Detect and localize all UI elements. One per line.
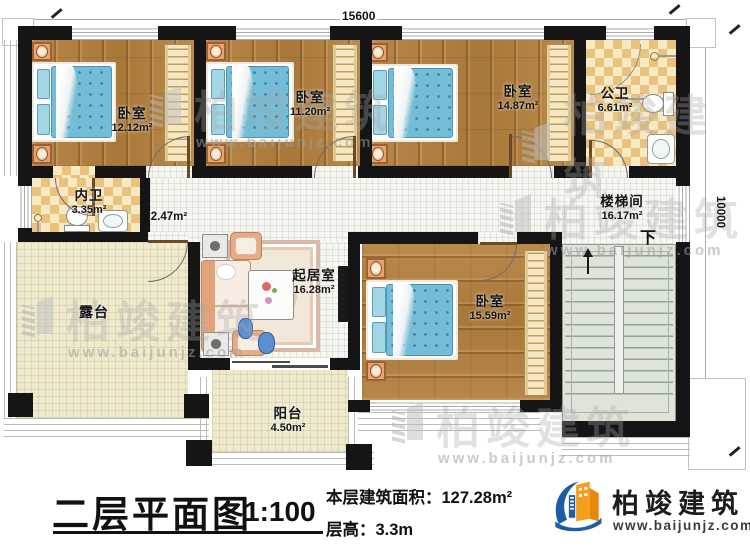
room-area: 16.17m² [584,210,660,223]
room-name: 公卫 [584,86,646,102]
floor-height-value: 3.3m [376,521,414,539]
room-area: 6.61m² [584,102,646,115]
wall [194,26,206,178]
wall [676,242,690,437]
window [676,186,690,242]
floor-area-label: 本层建筑面积： [326,489,442,507]
floor-area-value: 127.28m² [442,489,513,507]
sliding-door [230,358,330,370]
pillow [211,104,224,134]
room-label-stairhall: 楼梯间 16.17m² [584,194,660,223]
plan-title: 二层平面图 [52,484,252,538]
dimension-line-right [705,26,706,438]
wall [348,400,370,412]
floor-height-label: 层高： [326,521,376,539]
wall [629,166,690,178]
room-name: 阳台 [252,406,324,422]
room-name: 卧室 [455,294,525,310]
column [8,393,33,417]
room-area: 14.87m² [486,100,550,113]
nightstand [206,42,226,61]
title-underline [53,531,323,534]
room-name: 露台 [66,304,122,321]
sliding-door-panel [232,361,290,364]
wall [348,232,360,370]
brand-name: 柏竣建筑 [612,482,744,521]
room-area: 3.35m² [60,204,118,217]
nightstand [32,144,52,164]
window [606,26,654,40]
column [186,440,212,466]
nightstand [32,42,52,61]
door-leaf [148,240,188,243]
toilet [663,92,674,116]
person-figure [258,332,275,354]
dimension-top-value: 15600 [340,9,377,23]
bedroom4-sill [358,412,540,436]
room-area: 15.59m² [455,310,525,323]
wall [192,166,312,178]
armchair [230,232,262,260]
floor-height-info: 层高：3.3m [326,516,413,540]
door-leaf [187,136,190,178]
pillow [373,105,387,135]
blanket [56,66,78,137]
dimension-tick [729,24,741,34]
room-area: 11.20m² [278,106,342,119]
wall [550,232,562,412]
window [18,186,32,228]
room-area: 16.28m² [278,284,350,297]
wall [360,26,372,178]
wall [95,166,146,178]
side-table [203,332,229,356]
window [370,400,520,412]
hallway-area-label: 2.47m² [144,211,194,225]
side-table [202,234,228,258]
floorplan-stage: 柏竣建筑 www.baijunjz.com 柏竣建筑 柏竣建筑 www.baij… [0,0,750,548]
room-name: 内卫 [60,188,118,204]
title-block: 二层平面图 1:100 本层建筑面积：127.28m² 层高：3.3m 柏竣建筑… [0,470,750,548]
wall [520,400,562,412]
room-name: 楼梯间 [584,194,660,210]
nightstand [366,361,386,381]
person-figure [238,318,253,339]
pillow [372,287,386,317]
exterior-steps-bottomright [688,378,746,470]
room-label-bedroom3: 卧室 14.87m² [486,84,550,113]
room-name: 卧室 [100,106,164,122]
exterior-eave-topright [686,18,716,48]
window [236,26,330,40]
pillow [373,70,387,100]
room-area: 4.50m² [252,422,324,435]
wall [18,26,32,178]
terrace-rail-bottom [4,418,209,438]
pillow [37,69,50,99]
door-leaf [509,134,512,178]
door-leaf [480,242,517,245]
sliding-door-panel [272,365,328,368]
dimension-tick [51,8,63,18]
stairs-down-label: 下 [640,224,656,248]
dimension-right-value: 10000 [712,196,728,228]
room-name: 起居室 [278,268,350,284]
stair-arrow-stem [587,256,589,274]
room-label-publicbath: 公卫 6.61m² [584,86,646,115]
blanket [232,66,255,137]
room-area: 2.47m² [144,211,194,225]
room-label-terrace: 露台 [66,304,122,321]
room-name: 卧室 [486,84,550,100]
door-leaf [353,136,356,178]
floor-area-info: 本层建筑面积：127.28m² [326,484,512,508]
porch-steps [562,437,690,461]
bed-bedroom3 [368,64,458,142]
towel-bar [658,55,676,57]
wall [562,421,690,437]
room-label-bedroom2: 卧室 11.20m² [278,90,342,119]
window [72,26,158,40]
stair-divider [614,246,624,394]
column [346,444,372,470]
pillow [37,104,50,134]
wall [18,178,32,186]
toilet [64,225,90,232]
column [184,394,209,418]
bed-bedroom4 [366,280,458,360]
nightstand [366,258,386,279]
wall [358,166,510,178]
room-label-living: 起居室 16.28m² [278,268,350,297]
room-label-bedroom4: 卧室 15.59m² [455,294,525,323]
terrace-rail-left [4,242,17,418]
blanket [393,284,417,355]
room-name: 卧室 [278,90,342,106]
brand-logo-icon [548,476,606,541]
wall [188,358,230,370]
pillow [372,322,386,352]
room-label-privatebath: 内卫 3.35m² [60,188,118,217]
door-leaf [589,140,592,178]
door-opening [53,166,95,178]
wall [676,26,690,186]
pillow [211,69,224,99]
room-area: 12.12m² [100,122,164,135]
window [402,26,544,40]
room-label-bedroom1: 卧室 12.12m² [100,106,164,135]
room-label-balcony: 阳台 4.50m² [252,406,324,435]
plan-scale: 1:100 [244,496,316,528]
dimension-tick [669,4,681,14]
wall [18,232,150,242]
wardrobe [524,250,548,396]
blanket [394,68,417,138]
wall [188,242,200,370]
sink [647,134,675,164]
brand-url: www.baijunjz.com [613,518,750,533]
wall [330,358,360,370]
nightstand [206,144,226,164]
left-sill [4,40,17,176]
wall [18,166,53,178]
wall [348,232,478,244]
